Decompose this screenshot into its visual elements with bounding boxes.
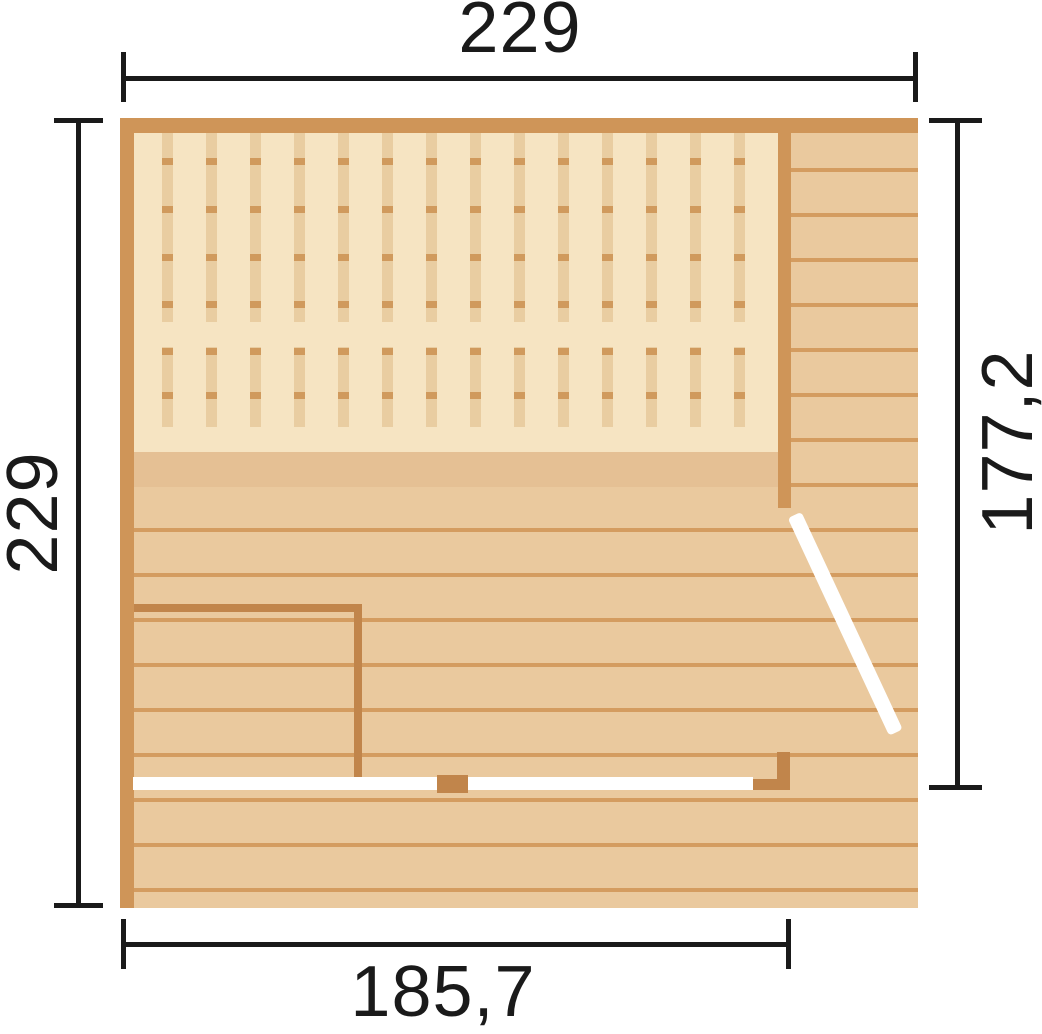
bench-tick-row xyxy=(162,392,745,399)
top-wall xyxy=(120,118,918,133)
dimension-label-right: 177,2 xyxy=(968,292,1042,592)
dimension-label-top: 229 xyxy=(420,0,620,68)
divider-wall xyxy=(778,118,791,508)
dimension-tick xyxy=(54,903,103,908)
dimension-tick xyxy=(54,118,103,123)
dimension-tick xyxy=(913,52,918,102)
dimension-tick xyxy=(929,118,982,123)
bench-tick-row xyxy=(162,301,745,308)
dimension-tick xyxy=(929,785,982,790)
bench-slats-lower xyxy=(162,347,745,427)
bench-tick-row xyxy=(162,348,745,355)
lower-bench-outline-top xyxy=(134,604,362,612)
upper-bench xyxy=(134,133,778,452)
dimension-label-left: 229 xyxy=(0,363,73,663)
door-post-horizontal xyxy=(753,779,790,790)
left-wall xyxy=(120,118,134,908)
sauna-floor-plan: 229 229 177,2 185,7 xyxy=(0,0,1042,1034)
dimension-line-top xyxy=(123,76,915,81)
dimension-line-right xyxy=(955,120,960,790)
glass-post xyxy=(437,775,468,793)
bench-tick-row xyxy=(162,206,745,213)
bench-tick-row xyxy=(162,254,745,261)
dimension-line-bottom xyxy=(123,942,791,947)
dimension-label-bottom: 185,7 xyxy=(293,952,593,1032)
bench-tick-row xyxy=(162,158,745,165)
bench-front-edge xyxy=(134,452,778,487)
dimension-tick xyxy=(786,919,791,969)
lower-bench-outline-side xyxy=(354,604,362,790)
dimension-tick xyxy=(121,919,126,969)
dimension-tick xyxy=(121,52,126,102)
dimension-line-left xyxy=(76,120,81,908)
